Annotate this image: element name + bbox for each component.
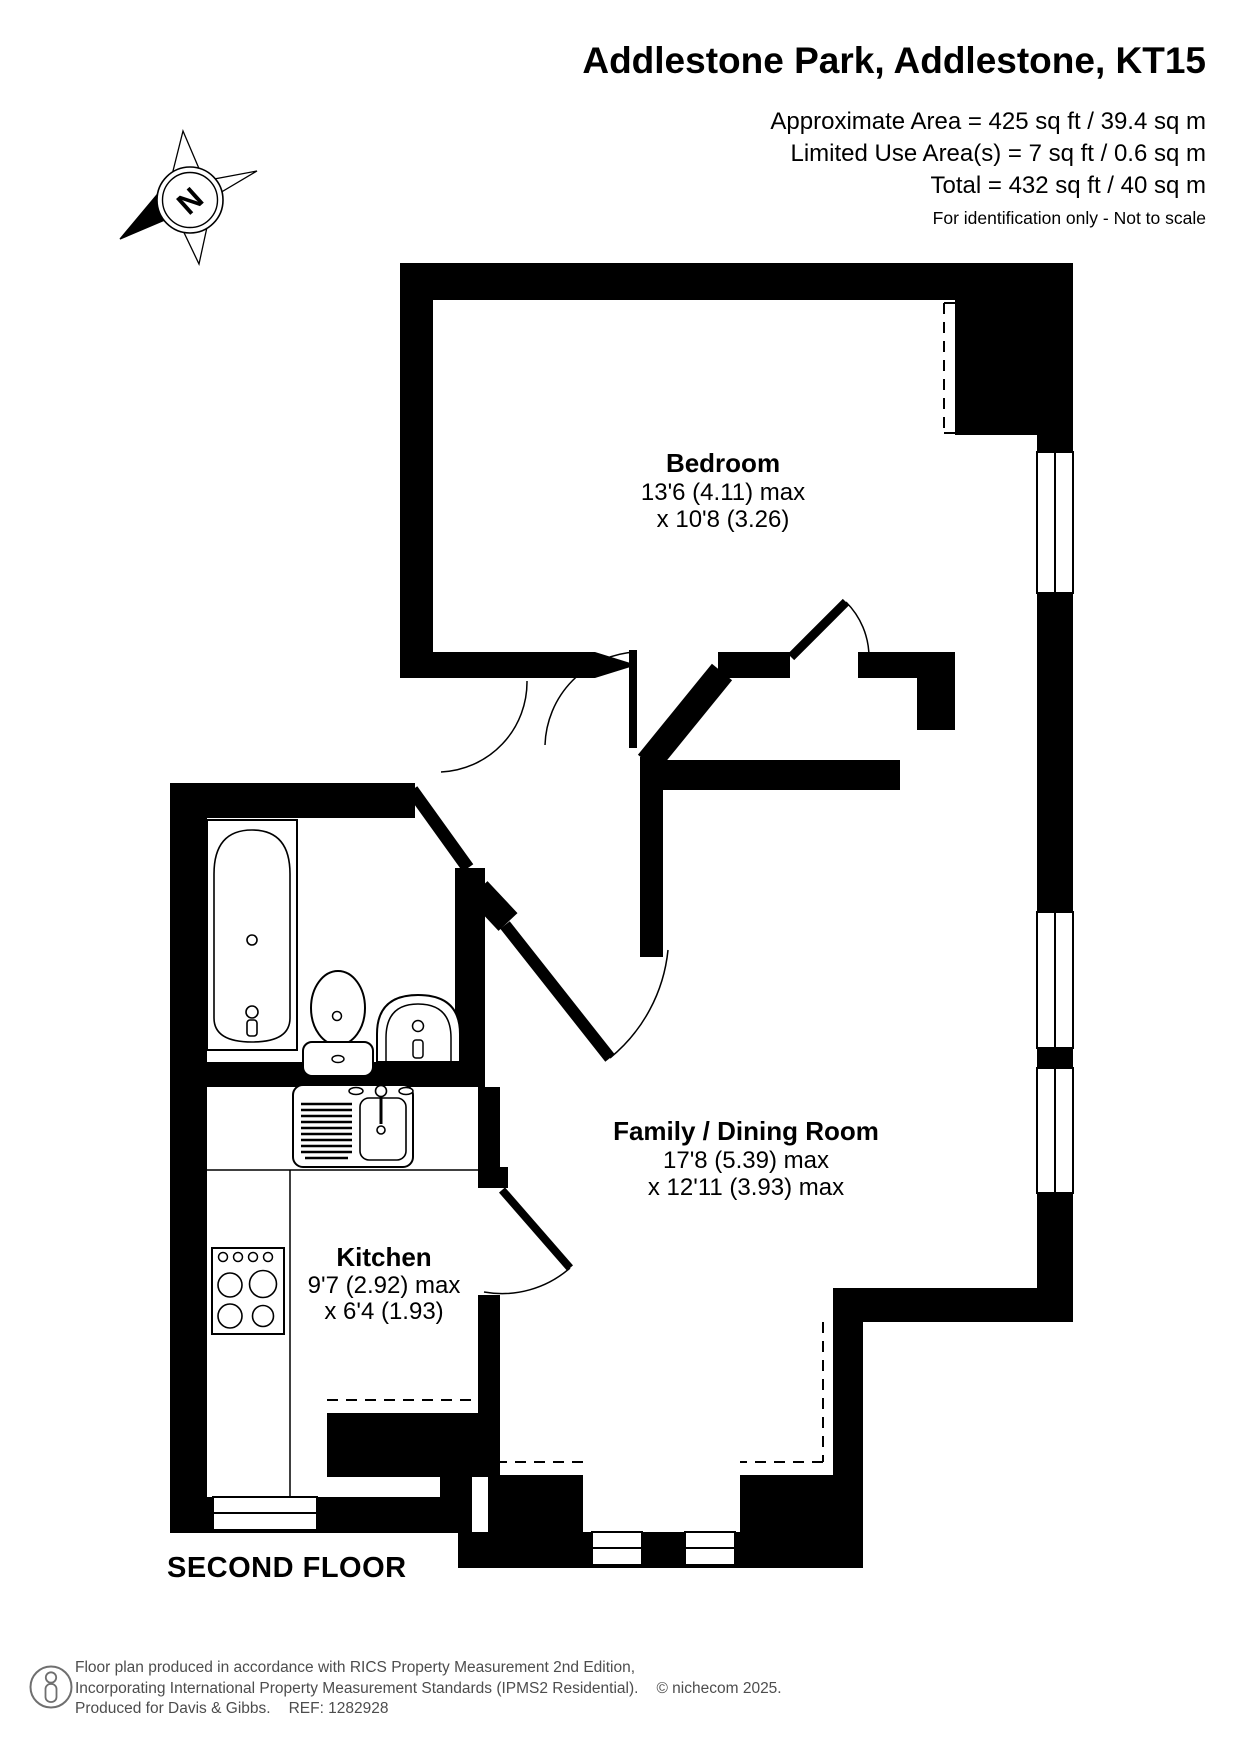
wall-right-bottom — [833, 1322, 863, 1568]
footer-ref: REF: 1282928 — [289, 1700, 389, 1717]
approximate-area: Approximate Area = 425 sq ft / 39.4 sq m — [582, 106, 1206, 138]
toilet-flush-icon — [333, 1012, 342, 1021]
wall-hall-diagonal — [648, 672, 722, 763]
footer-line2: Incorporating International Property Mea… — [75, 1679, 782, 1700]
room-labels: Bedroom 13'6 (4.11) max x 10'8 (3.26) Fa… — [308, 448, 879, 1325]
wall-kitchen-right-b — [478, 1295, 500, 1413]
wall-window-mullion — [1037, 1048, 1073, 1068]
scale-disclaimer: For identification only - Not to scale — [582, 208, 1206, 229]
footer-copyright: © nichecom 2025. — [656, 1680, 781, 1697]
bedroom-dim1: 13'6 (4.11) max — [641, 479, 805, 506]
footer-produced-for: Produced for Davis & Gibbs. — [75, 1700, 271, 1717]
wall-kitchen-jamb — [496, 1167, 508, 1188]
page-title: Addlestone Park, Addlestone, KT15 — [582, 40, 1206, 82]
wall-right-mid — [1037, 593, 1073, 912]
door-leaf-kitchen — [502, 1190, 570, 1268]
dash-bedroom — [944, 303, 955, 433]
basin-drain-icon — [413, 1021, 424, 1032]
wall-vestibule-stub — [917, 678, 955, 730]
kitchen-dim1: 9'7 (2.92) max — [308, 1272, 461, 1299]
person-badge-icon — [28, 1664, 74, 1715]
footer-line3: Produced for Davis & Gibbs.REF: 1282928 — [75, 1699, 782, 1720]
bath-tap-icon — [246, 1006, 258, 1018]
bath-tap-body-icon — [247, 1020, 257, 1036]
door-leaf-bedroom — [629, 650, 637, 748]
wall-left — [170, 783, 207, 1533]
wall-family-step — [833, 1288, 1073, 1322]
wall-bedroom-right-block — [955, 263, 1073, 435]
bathroom-fixtures — [207, 820, 460, 1076]
wall-bedroom-left — [400, 263, 433, 678]
wall-bay-flank-left — [488, 1475, 583, 1532]
dash-family-right — [740, 1322, 823, 1462]
sink-drain-icon — [377, 1126, 385, 1134]
total-area: Total = 432 sq ft / 40 sq m — [582, 170, 1206, 202]
wall-hall-top-a — [718, 652, 790, 678]
floorplan-drawing: N Bedroom 13'6 (4.11) max x 10'8 (3.26) … — [0, 0, 1241, 1755]
basin-tap-icon — [413, 1040, 423, 1058]
wall-bay-flank-right — [740, 1475, 833, 1532]
door-leaf-bathroom — [412, 790, 468, 868]
family-dining-dim2: x 12'11 (3.93) max — [648, 1174, 844, 1201]
bath-drain-icon — [247, 935, 257, 945]
bedroom-label: Bedroom — [666, 448, 780, 478]
wall-bottom-center — [458, 1532, 863, 1568]
floorplan-page: N Bedroom 13'6 (4.11) max x 10'8 (3.26) … — [0, 0, 1241, 1755]
footer-standards: Incorporating International Property Mea… — [75, 1680, 638, 1697]
toilet-button-icon — [332, 1056, 344, 1063]
toilet-bowl-icon — [311, 971, 365, 1045]
walls — [170, 263, 1073, 1568]
wall-hall-top-b — [858, 652, 955, 678]
bedroom-dim2: x 10'8 (3.26) — [657, 506, 790, 533]
footer: Floor plan produced in accordance with R… — [75, 1658, 782, 1720]
sink-tap-right-icon — [399, 1088, 413, 1095]
kitchen-dim2: x 6'4 (1.93) — [324, 1298, 443, 1325]
diagonal-walls — [478, 672, 722, 922]
wall-bedroom-bottom — [432, 652, 637, 678]
door-arc-bathroom — [441, 681, 527, 772]
wall-kitchen-chunk — [327, 1413, 500, 1477]
wall-hall-family — [640, 760, 900, 790]
header: Addlestone Park, Addlestone, KT15 Approx… — [582, 40, 1206, 229]
limited-use-area: Limited Use Area(s) = 7 sq ft / 0.6 sq m — [582, 138, 1206, 170]
wall-bathroom-top — [170, 783, 415, 818]
floor-label: SECOND FLOOR — [167, 1552, 407, 1584]
family-dining-dim1: 17'8 (5.39) max — [663, 1147, 829, 1174]
compass-icon: N — [120, 131, 257, 264]
family-dining-label: Family / Dining Room — [613, 1116, 879, 1146]
door-arc-family — [610, 950, 668, 1058]
wall-sill — [1037, 435, 1073, 452]
door-arc-entrance — [846, 602, 869, 657]
kitchen-label: Kitchen — [336, 1242, 431, 1272]
door-leaf-entrance — [791, 602, 846, 657]
dash-family-left — [488, 1462, 583, 1475]
sink-tap-left-icon — [349, 1088, 363, 1095]
door-leaf-family — [505, 925, 610, 1058]
footer-line1: Floor plan produced in accordance with R… — [75, 1658, 782, 1679]
door-arc-kitchen — [484, 1268, 570, 1294]
sink-spout-icon — [376, 1086, 387, 1097]
